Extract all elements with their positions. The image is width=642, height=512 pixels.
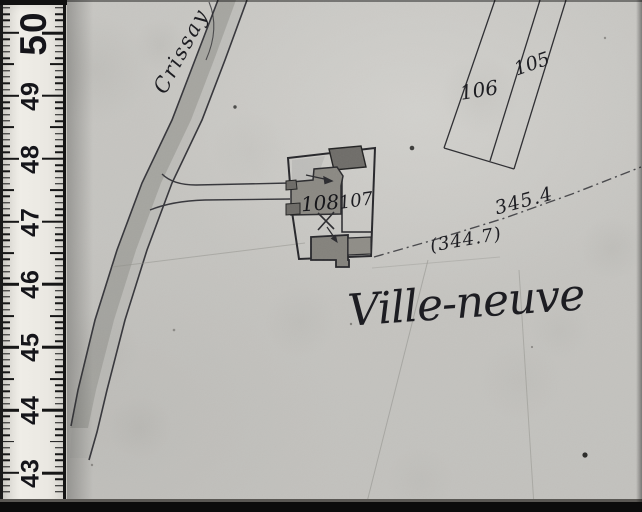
- ruler-tick-right: [55, 196, 63, 198]
- ruler-tick-right: [55, 114, 63, 116]
- ruler-tick-right: [55, 139, 63, 141]
- ruler-tick-left: [3, 70, 10, 71]
- ruler-tick-left: [3, 303, 10, 304]
- ruler: 5049484746454443: [0, 0, 67, 512]
- ruler-tick-right: [55, 70, 63, 72]
- ruler-number: 48: [17, 144, 46, 174]
- ruler-tick-right: [55, 428, 63, 430]
- ruler-tick-left: [3, 447, 10, 448]
- ruler-tick-left: [3, 202, 10, 203]
- ruler-tick-right: [55, 365, 63, 367]
- ruler-number: 47: [17, 207, 46, 237]
- ruler-tick-left: [3, 164, 10, 165]
- ruler-tick-left: [3, 422, 10, 423]
- ruler-tick-right: [55, 177, 63, 179]
- ruler-tick-right: [55, 422, 63, 424]
- ruler-tick-right: [55, 208, 63, 210]
- ruler-tick-left: [3, 290, 10, 291]
- ruler-tick-right: [55, 259, 63, 261]
- ruler-tick-left: [3, 177, 10, 178]
- ruler-tick-left: [3, 189, 14, 191]
- ruler-tick-left: [3, 133, 10, 134]
- ruler-tick-right: [55, 76, 63, 78]
- ruler-tick-right: [55, 359, 63, 361]
- ruler-tick-left: [3, 120, 10, 121]
- ruler-tick-left: [3, 365, 10, 366]
- ruler-tick-right: [55, 152, 63, 154]
- ruler-tick-right: [55, 45, 63, 47]
- ruler-tick-right: [55, 309, 63, 311]
- ruler-tick-left: [3, 252, 14, 254]
- ruler-tick-right: [55, 340, 63, 342]
- ruler-tick-right: [55, 485, 63, 487]
- ruler-tick-left: [3, 83, 10, 84]
- ruler-tick-right: [55, 89, 63, 91]
- ruler-tick-right: [55, 240, 63, 242]
- ruler-tick-left: [3, 101, 10, 102]
- ruler-tick-left: [3, 321, 10, 322]
- ruler-tick-left: [3, 20, 10, 21]
- photo-edge-bottom: [0, 502, 642, 512]
- ruler-tick-right: [55, 57, 63, 59]
- ruler-tick-right: [50, 126, 63, 128]
- ruler-tick-left: [3, 246, 10, 247]
- ruler-tick-left: [3, 227, 10, 228]
- ruler-tick-right: [55, 277, 63, 279]
- ruler-tick-left: [3, 271, 10, 272]
- ruler-tick-left: [3, 183, 10, 184]
- ruler-tick-left: [3, 139, 10, 140]
- ruler-tick-left: [3, 57, 10, 58]
- ruler-tick-left: [3, 64, 14, 66]
- ruler-tick-left: [3, 479, 10, 480]
- ruler-number: 44: [17, 395, 46, 425]
- ruler-tick-right: [55, 328, 63, 330]
- ruler-tick-left: [3, 89, 10, 90]
- ruler-tick-left: [3, 491, 10, 492]
- ruler-tick-left: [3, 13, 10, 14]
- ruler-tick-left: [3, 372, 10, 373]
- ruler-tick-left: [3, 485, 10, 486]
- ruler-tick-right: [55, 384, 63, 386]
- ruler-tick-right: [55, 296, 63, 298]
- ruler-tick-left: [3, 171, 10, 172]
- ruler-tick-right: [55, 101, 63, 103]
- ruler-tick-right: [55, 372, 63, 374]
- ruler-tick-right: [55, 265, 63, 267]
- ruler-tick-right: [55, 20, 63, 22]
- ruler-tick-right: [55, 397, 63, 399]
- ruler-tick-right: [50, 64, 63, 66]
- ruler-number: 43: [17, 458, 46, 488]
- ruler-tick-right: [55, 353, 63, 355]
- ruler-shadow: [67, 0, 93, 512]
- ruler-tick-right: [55, 321, 63, 323]
- ruler-tick-left: [3, 126, 14, 128]
- ruler-tick-left: [3, 460, 10, 461]
- ruler-tick-left: [3, 265, 10, 266]
- ruler-tick-right: [55, 403, 63, 405]
- ruler-tick-left: [3, 208, 10, 209]
- film-grain: [0, 0, 642, 512]
- ruler-tick-right: [55, 460, 63, 462]
- ruler-tick-right: [55, 108, 63, 110]
- ruler-tick-left: [3, 328, 10, 329]
- ruler-tick-right: [55, 290, 63, 292]
- ruler-tick-left: [3, 296, 10, 297]
- ruler-tick-left: [3, 114, 10, 115]
- ruler-tick-right: [55, 334, 63, 336]
- ruler-tick-left: [3, 233, 10, 234]
- ruler-tick-left: [3, 259, 10, 260]
- ruler-tick-left: [3, 391, 10, 392]
- ruler-tick-left: [3, 51, 10, 52]
- ruler-tick-right: [55, 164, 63, 166]
- ruler-tick-right: [55, 303, 63, 305]
- ruler-tick-left: [3, 334, 10, 335]
- map-drawing: [0, 0, 642, 512]
- ruler-tick-right: [55, 391, 63, 393]
- ruler-tick-left: [3, 240, 10, 241]
- ruler-tick-right: [55, 479, 63, 481]
- ruler-tick-left: [3, 315, 14, 317]
- ruler-tick-left: [3, 403, 10, 404]
- ruler-tick-right: [55, 271, 63, 273]
- ruler-tick-left: [3, 45, 10, 46]
- ruler-tick-right: [55, 120, 63, 122]
- ruler-tick-right: [55, 26, 63, 28]
- ruler-tick-right: [55, 202, 63, 204]
- ruler-tick-left: [3, 441, 14, 443]
- ruler-tick-right: [55, 246, 63, 248]
- ruler-tick-left: [3, 428, 10, 429]
- ruler-tick-right: [55, 215, 63, 217]
- ruler-tick-left: [3, 353, 10, 354]
- ruler-tick-left: [3, 435, 10, 436]
- ruler-tick-left: [3, 277, 10, 278]
- ruler-tick-right: [55, 453, 63, 455]
- photo-edge-right: [636, 0, 642, 512]
- photo-edge-top: [0, 0, 642, 2]
- ruler-tick-right: [55, 133, 63, 135]
- ruler-tick-left: [3, 76, 10, 77]
- ruler-tick-left: [3, 7, 10, 8]
- ruler-tick-right: [55, 171, 63, 173]
- ruler-tick-right: [55, 466, 63, 468]
- ruler-tick-left: [3, 152, 10, 153]
- cadastral-map-photo: Crissay 106 105 108 107 345.4 (344.7) Vi…: [0, 0, 642, 512]
- ruler-tick-right: [55, 233, 63, 235]
- ruler-tick-left: [3, 196, 10, 197]
- ruler-tick-right: [55, 39, 63, 41]
- ruler-tick-right: [55, 491, 63, 493]
- ruler-tick-right: [55, 183, 63, 185]
- ruler-tick-right: [50, 315, 63, 317]
- ruler-tick-left: [3, 26, 10, 27]
- ruler-tick-right: [55, 13, 63, 15]
- ruler-tick-left: [3, 309, 10, 310]
- ruler-tick-left: [3, 340, 10, 341]
- ruler-tick-right: [55, 145, 63, 147]
- ruler-number: 49: [17, 81, 46, 111]
- photo-edge-top-left: [0, 0, 67, 5]
- ruler-tick-left: [3, 466, 10, 467]
- ruler-tick-left: [3, 39, 10, 40]
- ruler-tick-right: [55, 227, 63, 229]
- ruler-tick-left: [3, 145, 10, 146]
- ruler-tick-left: [3, 384, 10, 385]
- ruler-tick-right: [55, 83, 63, 85]
- ruler-number: 46: [17, 270, 46, 300]
- ruler-tick-left: [3, 108, 10, 109]
- ruler-tick-right: [55, 51, 63, 53]
- ruler-tick-left: [3, 359, 10, 360]
- ruler-tick-right: [50, 441, 63, 443]
- ruler-tick-right: [50, 378, 63, 380]
- ruler-tick-left: [3, 378, 14, 380]
- ruler-tick-left: [3, 397, 10, 398]
- ruler-tick-right: [50, 252, 63, 254]
- ruler-tick-right: [55, 447, 63, 449]
- ruler-right-edge: [63, 0, 67, 512]
- ruler-tick-right: [50, 189, 63, 191]
- ruler-tick-left: [3, 416, 10, 417]
- ruler-number: 45: [17, 332, 46, 362]
- ruler-number: 50: [13, 10, 55, 55]
- ruler-tick-left: [3, 453, 10, 454]
- ruler-tick-right: [55, 7, 63, 9]
- ruler-tick-left: [3, 215, 10, 216]
- ruler-tick-right: [55, 416, 63, 418]
- ruler-tick-right: [55, 435, 63, 437]
